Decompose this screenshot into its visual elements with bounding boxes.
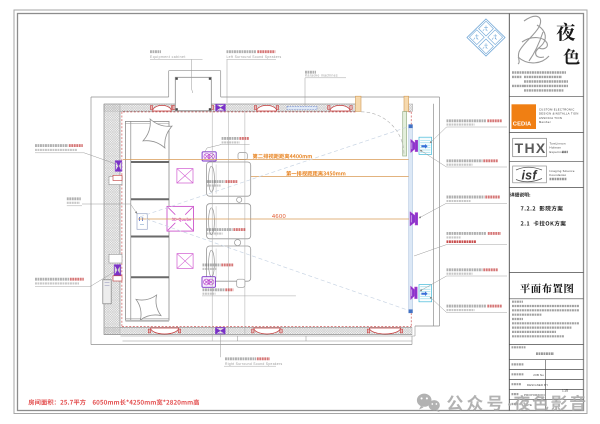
svg-text:4600: 4600 [272,214,286,220]
svg-text:DESIGN &INSTALLA TION: DESIGN &INSTALLA TION [539,112,579,116]
svg-text:DESIGNED BY: DESIGNED BY [527,383,548,387]
svg-text:CUSTOM ELECTRONIC: CUSTOM ELECTRONIC [539,108,575,112]
svg-text:ASSOCIA TION: ASSOCIA TION [539,116,562,120]
svg-text:JOB No: JOB No [533,373,544,377]
svg-text:CEDIA: CEDIA [513,121,532,127]
svg-text:THX: THX [515,140,547,156]
svg-text:Left Surround Sound Speakers: Left Surround Sound Speakers [227,55,282,59]
svg-text:Foundation: Foundation [550,173,567,177]
svg-text:Experiment: Experiment [550,150,567,154]
svg-text:isf: isf [522,168,539,182]
svg-text:1:35: 1:35 [562,388,568,392]
svg-text:Member: Member [539,120,551,124]
svg-text:Right Surround Sound Speakers: Right Surround Sound Speakers [225,362,283,366]
svg-text:Equipment cabinet: Equipment cabinet [150,55,186,59]
svg-text:Karaoke machines: Karaoke machines [305,74,338,78]
